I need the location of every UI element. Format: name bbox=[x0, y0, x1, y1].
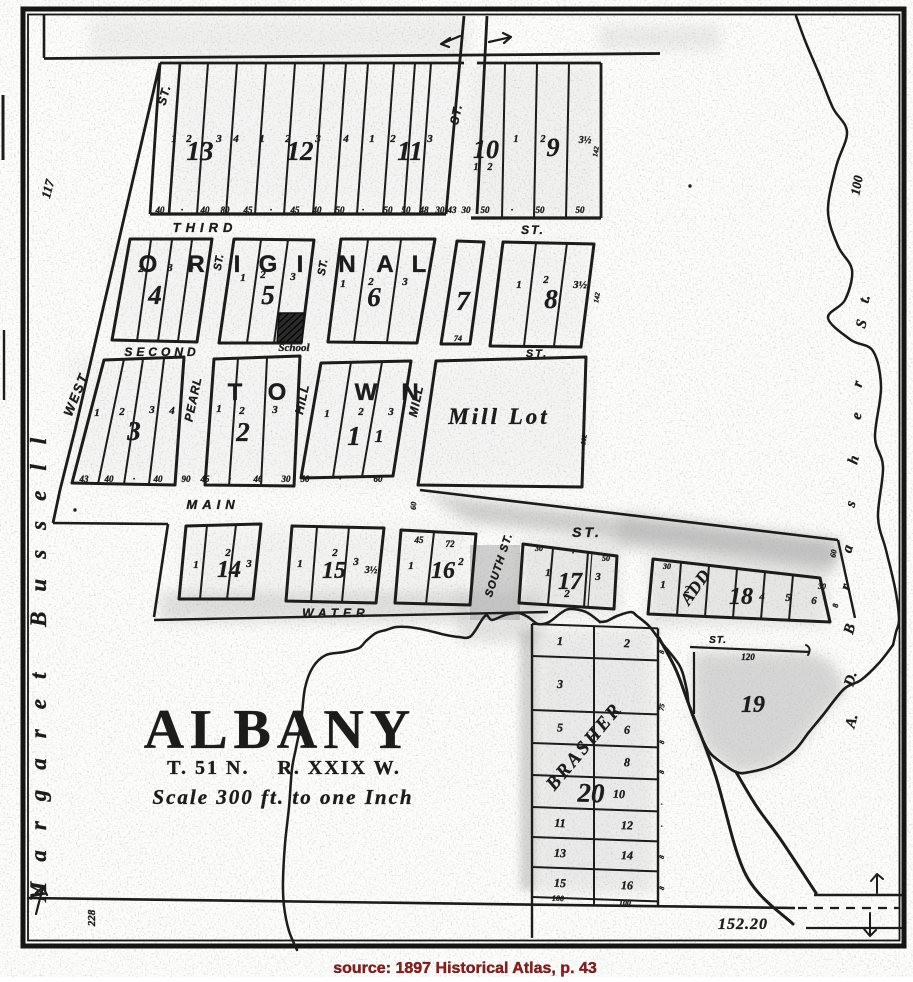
svg-text:THIRD: THIRD bbox=[173, 220, 238, 235]
svg-text:45: 45 bbox=[290, 205, 301, 215]
svg-text:1: 1 bbox=[514, 134, 519, 145]
svg-text:60: 60 bbox=[828, 549, 838, 558]
svg-text:3: 3 bbox=[166, 262, 173, 274]
svg-text:N: N bbox=[338, 251, 355, 278]
svg-text:45: 45 bbox=[243, 205, 254, 215]
svg-text:2: 2 bbox=[623, 636, 630, 650]
svg-text:MAIN: MAIN bbox=[186, 497, 239, 512]
svg-text:14: 14 bbox=[621, 848, 633, 862]
svg-text:ALBANY: ALBANY bbox=[144, 699, 416, 761]
svg-text:3: 3 bbox=[594, 571, 601, 583]
svg-text:·: · bbox=[511, 205, 513, 215]
svg-text:3: 3 bbox=[314, 133, 321, 145]
svg-text:·: · bbox=[270, 205, 272, 215]
svg-text:3: 3 bbox=[289, 271, 296, 283]
svg-text:7: 7 bbox=[456, 286, 471, 316]
svg-text:1: 1 bbox=[240, 272, 246, 284]
svg-text:50: 50 bbox=[336, 205, 346, 215]
svg-text:3: 3 bbox=[426, 133, 433, 145]
svg-text:50: 50 bbox=[402, 205, 412, 215]
svg-text:1: 1 bbox=[340, 278, 346, 290]
svg-text:T. 51 N. R. XXIX W.: T. 51 N. R. XXIX W. bbox=[167, 757, 401, 779]
svg-text:4: 4 bbox=[342, 133, 349, 145]
svg-text:48: 48 bbox=[419, 205, 430, 215]
svg-text:1: 1 bbox=[347, 421, 361, 451]
svg-text:W: W bbox=[355, 379, 378, 406]
svg-text:60: 60 bbox=[374, 474, 384, 484]
svg-text:1: 1 bbox=[171, 133, 177, 145]
svg-text:15: 15 bbox=[554, 876, 566, 890]
svg-text:20: 20 bbox=[577, 778, 605, 809]
svg-text:L: L bbox=[412, 251, 427, 278]
svg-text:·: · bbox=[339, 474, 341, 484]
svg-text:Scale 300 ft. to one Inch: Scale 300 ft. to one Inch bbox=[152, 785, 413, 809]
svg-text:ST.: ST. bbox=[572, 524, 602, 540]
svg-text:72: 72 bbox=[446, 539, 456, 549]
svg-text:1: 1 bbox=[297, 558, 303, 570]
svg-text:100: 100 bbox=[552, 894, 564, 903]
svg-text:40: 40 bbox=[155, 205, 166, 215]
svg-text:50: 50 bbox=[481, 205, 491, 215]
svg-text:5: 5 bbox=[785, 592, 791, 604]
svg-text:source: 1897 Historical Atlas,: source: 1897 Historical Atlas, p. 43 bbox=[333, 960, 597, 977]
svg-text:50: 50 bbox=[536, 205, 546, 215]
svg-text:50: 50 bbox=[602, 554, 610, 563]
svg-text:2: 2 bbox=[357, 406, 364, 418]
svg-text:43: 43 bbox=[79, 474, 90, 484]
svg-text:5: 5 bbox=[557, 720, 563, 734]
svg-text:I: I bbox=[297, 251, 304, 278]
svg-text:3: 3 bbox=[352, 556, 359, 568]
svg-text:30: 30 bbox=[461, 205, 472, 215]
svg-text:3: 3 bbox=[245, 558, 252, 570]
svg-text:50: 50 bbox=[576, 205, 586, 215]
svg-text:2: 2 bbox=[389, 133, 396, 145]
svg-text:ST.: ST. bbox=[709, 635, 727, 646]
svg-text:40: 40 bbox=[200, 205, 211, 215]
svg-text:60: 60 bbox=[409, 501, 419, 510]
svg-text:1: 1 bbox=[557, 634, 563, 648]
svg-text:3: 3 bbox=[387, 406, 394, 418]
svg-text:3: 3 bbox=[148, 404, 155, 416]
svg-text:2: 2 bbox=[238, 405, 245, 417]
svg-text:A: A bbox=[376, 251, 393, 278]
svg-text:228: 228 bbox=[86, 909, 98, 927]
svg-text:3½: 3½ bbox=[578, 135, 592, 146]
svg-text:1: 1 bbox=[545, 567, 551, 579]
svg-text:1: 1 bbox=[408, 560, 414, 572]
svg-text:74: 74 bbox=[454, 334, 462, 343]
svg-text:19: 19 bbox=[741, 692, 765, 718]
svg-text:45: 45 bbox=[414, 535, 425, 545]
svg-text:Margaret Bussell: Margaret Bussell bbox=[26, 418, 51, 903]
svg-text:10: 10 bbox=[473, 135, 499, 164]
svg-text:40: 40 bbox=[153, 474, 164, 484]
svg-text:16: 16 bbox=[621, 878, 633, 892]
svg-text:3½: 3½ bbox=[572, 279, 588, 291]
svg-text:4: 4 bbox=[147, 280, 162, 310]
svg-text:1: 1 bbox=[369, 133, 375, 145]
svg-text:1: 1 bbox=[375, 426, 384, 446]
svg-text:1: 1 bbox=[259, 133, 265, 145]
svg-text:30: 30 bbox=[534, 544, 543, 553]
svg-text:14: 14 bbox=[217, 557, 241, 583]
svg-text:11: 11 bbox=[554, 816, 565, 830]
svg-text:6: 6 bbox=[811, 595, 817, 607]
svg-text:3: 3 bbox=[556, 677, 563, 691]
svg-text:45: 45 bbox=[200, 474, 211, 484]
svg-text:O: O bbox=[268, 379, 287, 406]
svg-text:Mill Lot: Mill Lot bbox=[447, 404, 549, 429]
svg-text:1: 1 bbox=[193, 559, 199, 571]
svg-text:3: 3 bbox=[126, 416, 141, 446]
svg-text:10: 10 bbox=[613, 787, 625, 801]
svg-text:2: 2 bbox=[487, 162, 493, 173]
svg-text:40: 40 bbox=[312, 205, 323, 215]
svg-text:4: 4 bbox=[232, 133, 239, 145]
svg-text:30: 30 bbox=[817, 582, 826, 591]
svg-text:O: O bbox=[139, 251, 158, 278]
svg-text:90: 90 bbox=[182, 474, 192, 484]
svg-text:1: 1 bbox=[216, 403, 222, 415]
svg-text:30: 30 bbox=[435, 205, 446, 215]
svg-text:·: · bbox=[229, 474, 231, 484]
svg-text:1: 1 bbox=[660, 579, 666, 591]
svg-text:N: N bbox=[401, 379, 418, 406]
svg-text:43: 43 bbox=[447, 205, 458, 215]
svg-text:17: 17 bbox=[558, 569, 583, 595]
svg-text:46: 46 bbox=[253, 474, 264, 484]
svg-text:·: · bbox=[133, 474, 135, 484]
svg-text:·: · bbox=[362, 205, 364, 215]
svg-text:15: 15 bbox=[322, 558, 346, 584]
svg-text:1: 1 bbox=[94, 407, 100, 419]
svg-text:50: 50 bbox=[384, 205, 394, 215]
svg-text:3: 3 bbox=[401, 276, 408, 288]
svg-text:3: 3 bbox=[215, 133, 222, 145]
svg-text:School: School bbox=[278, 342, 310, 354]
svg-text:8: 8 bbox=[624, 755, 630, 769]
svg-text:2: 2 bbox=[284, 133, 291, 145]
svg-text:5: 5 bbox=[261, 280, 275, 310]
svg-text:30: 30 bbox=[281, 474, 292, 484]
svg-text:120: 120 bbox=[741, 652, 755, 662]
svg-text:40: 40 bbox=[104, 474, 115, 484]
svg-text:2: 2 bbox=[235, 417, 250, 447]
svg-text:2: 2 bbox=[457, 556, 464, 568]
svg-text:·: · bbox=[572, 548, 574, 558]
svg-text:6: 6 bbox=[367, 282, 381, 312]
svg-text:80: 80 bbox=[221, 205, 231, 215]
svg-text:30: 30 bbox=[662, 562, 671, 571]
svg-text:T: T bbox=[228, 379, 243, 406]
svg-text:12: 12 bbox=[621, 818, 633, 832]
svg-text:2: 2 bbox=[185, 133, 192, 145]
svg-text:6: 6 bbox=[624, 723, 630, 737]
svg-text:18: 18 bbox=[729, 584, 753, 610]
svg-text:1: 1 bbox=[324, 408, 330, 420]
svg-text:R: R bbox=[187, 251, 204, 278]
svg-text:ST.: ST. bbox=[521, 223, 545, 237]
svg-text:2: 2 bbox=[540, 134, 546, 145]
svg-text:9: 9 bbox=[547, 133, 560, 162]
svg-text:152.20: 152.20 bbox=[718, 916, 768, 933]
svg-text:4: 4 bbox=[758, 591, 765, 603]
svg-text:G: G bbox=[259, 251, 278, 278]
svg-text:2: 2 bbox=[118, 406, 125, 418]
svg-text:1: 1 bbox=[516, 279, 522, 291]
svg-text:50: 50 bbox=[301, 474, 311, 484]
svg-text:13: 13 bbox=[554, 846, 566, 860]
svg-text:·: · bbox=[181, 205, 183, 215]
svg-text:1: 1 bbox=[474, 162, 479, 173]
svg-text:11: 11 bbox=[397, 136, 423, 166]
svg-text:3½: 3½ bbox=[364, 565, 378, 576]
svg-text:8: 8 bbox=[544, 284, 558, 314]
svg-text:4: 4 bbox=[168, 405, 175, 417]
svg-text:I: I bbox=[234, 251, 241, 278]
svg-text:16: 16 bbox=[431, 558, 455, 584]
